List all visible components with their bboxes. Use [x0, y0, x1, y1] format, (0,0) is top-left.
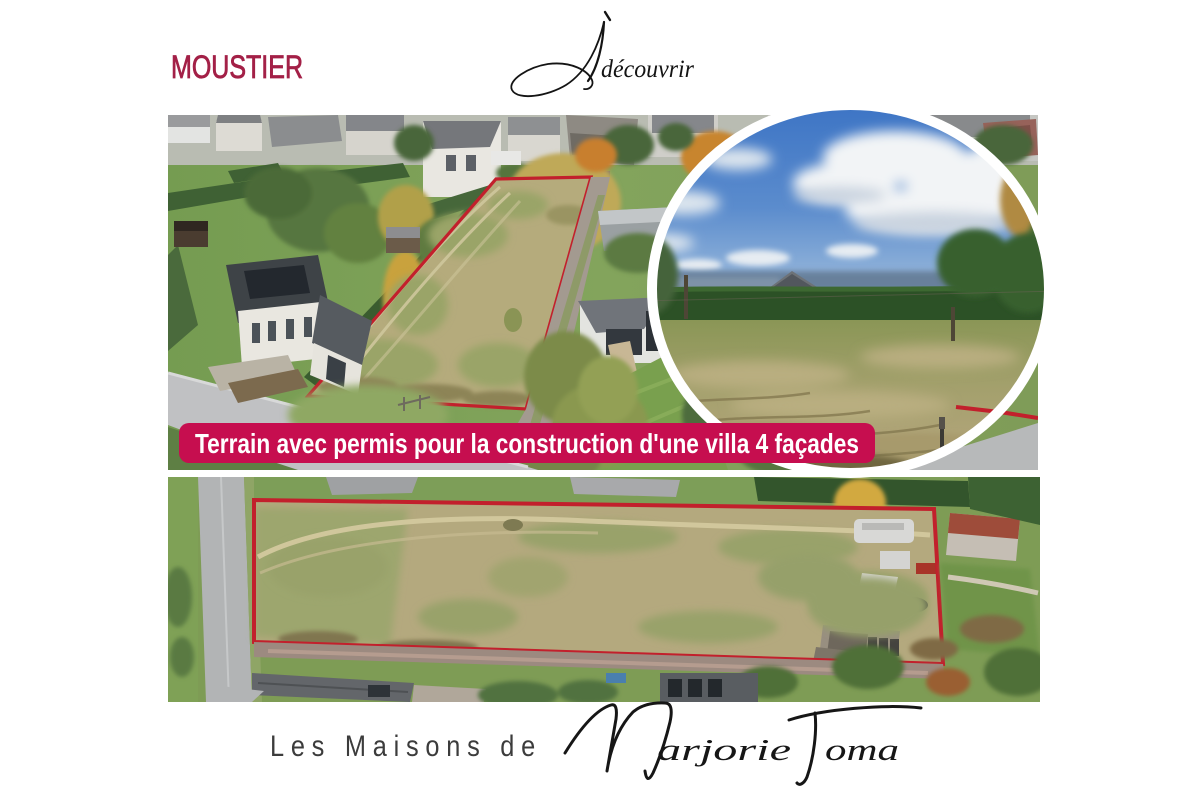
svg-text:arjorie: arjorie — [657, 732, 791, 767]
svg-text:Terrain avec permis pour la co: Terrain avec permis pour la construction… — [195, 428, 859, 459]
svg-text:oma: oma — [825, 732, 899, 767]
svg-text:MOUSTIER: MOUSTIER — [171, 51, 303, 83]
svg-text:Les Maisons de: Les Maisons de — [270, 731, 542, 763]
svg-text:découvrir: découvrir — [601, 56, 694, 83]
